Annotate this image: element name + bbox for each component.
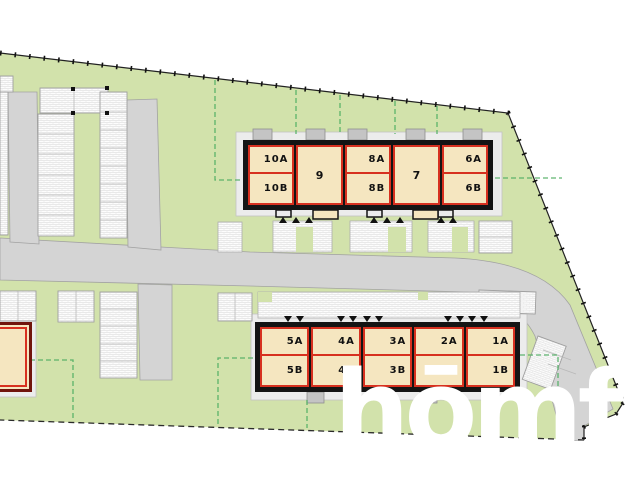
unit-9: 9	[296, 145, 342, 205]
unit-7: 7	[393, 145, 439, 205]
unit-5b: 5B	[260, 354, 309, 387]
unit-label: 6A	[465, 155, 482, 165]
unit-label: 8A	[369, 155, 386, 165]
unit-label: 3A	[390, 337, 407, 347]
unit-label: 8B	[369, 184, 386, 194]
unit-label: 9	[316, 170, 324, 181]
unit-10: 10A 10B	[248, 145, 294, 205]
building-west-edge	[0, 322, 32, 392]
unit-5: 5A 5B	[260, 327, 309, 387]
site-plan: 10A 10B 9 8A 8B 7 6A 6B 5A 5B 4A 4B 3A 3…	[0, 0, 640, 480]
road-left-b	[126, 99, 161, 250]
unit-label: 5A	[287, 337, 304, 347]
road-left-a	[8, 92, 39, 244]
unit-label: 5B	[287, 366, 304, 376]
unit-8b: 8B	[345, 172, 391, 205]
unit-5a: 5A	[260, 327, 309, 356]
unit-6: 6A 6B	[442, 145, 488, 205]
unit-label: 10B	[264, 184, 289, 194]
unit-label: 4A	[338, 337, 355, 347]
unit-label: 1A	[492, 337, 509, 347]
building-row-north: 10A 10B 9 8A 8B 7 6A 6B	[243, 140, 493, 210]
road-stub-south	[138, 284, 172, 380]
unit-8: 8A 8B	[345, 145, 391, 205]
unit-label: 6B	[465, 184, 482, 194]
unit-label: 2A	[441, 337, 458, 347]
unit-label: 10A	[264, 155, 289, 165]
building-west-unit	[0, 327, 27, 387]
unit-10b: 10B	[248, 172, 294, 205]
unit-6b: 6B	[442, 172, 488, 205]
unit-6a: 6A	[442, 145, 488, 174]
unit-10a: 10A	[248, 145, 294, 174]
unit-8a: 8A	[345, 145, 391, 174]
unit-label: 7	[413, 170, 421, 181]
homfi-watermark-logo: hōmfi	[334, 357, 640, 463]
